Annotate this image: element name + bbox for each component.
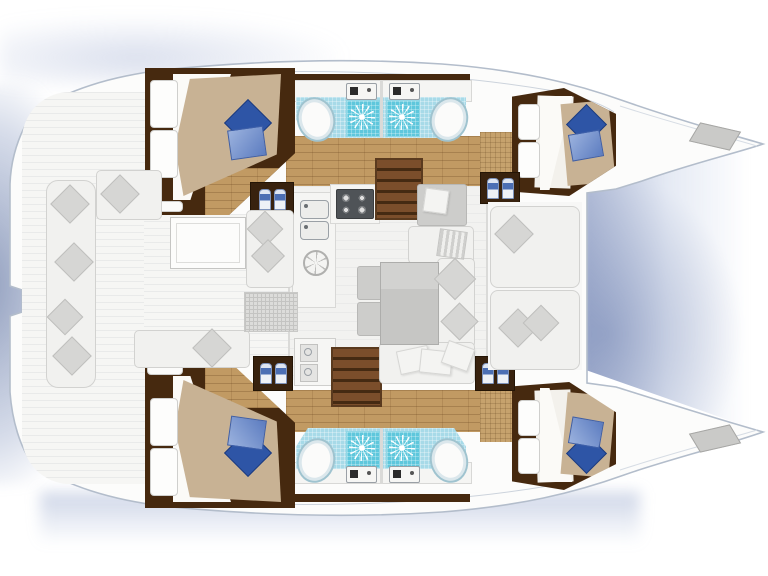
- accent-pillow-light: [568, 416, 604, 448]
- stbd-fwd-cabin-entry-floor: [480, 388, 516, 442]
- port-heads-divider-wall: [380, 80, 383, 138]
- stbd-companionway-stairs: [331, 347, 382, 407]
- stove-cooktop: [336, 189, 374, 219]
- bottle-icon: [487, 178, 499, 199]
- shower-drain-icon: [389, 104, 415, 130]
- port-aft-shower: [346, 100, 380, 137]
- bottle-locker: [253, 356, 293, 391]
- wardrobe-panel: [150, 448, 178, 496]
- bottle-icon: [502, 178, 514, 199]
- accent-pillow-light: [227, 126, 267, 161]
- bottle-locker: [480, 172, 520, 204]
- galley-sink: [300, 200, 329, 219]
- shower-drain-icon: [349, 104, 375, 130]
- cockpit-table: [170, 217, 246, 269]
- stbd-fwd-toilet: [389, 466, 420, 483]
- port-aft-toilet: [346, 83, 377, 100]
- wardrobe-panel: [518, 142, 540, 178]
- fwd-cockpit-bench: [490, 206, 580, 288]
- stbd-aft-shower: [346, 431, 380, 468]
- wardrobe-panel: [150, 80, 178, 128]
- port-fwd-shower: [386, 100, 420, 137]
- cockpit-aft-bench: [134, 330, 250, 368]
- bottle-icon: [259, 189, 271, 210]
- stbd-fwd-shower: [386, 431, 420, 468]
- bottle-icon: [275, 363, 287, 384]
- wardrobe-panel: [150, 398, 178, 446]
- shower-drain-icon: [349, 435, 375, 461]
- catamaran-floor-plan: [0, 0, 768, 576]
- galley-sink: [300, 221, 329, 240]
- stbd-heads-divider-wall: [380, 428, 383, 484]
- sofa-pillow: [436, 228, 468, 260]
- bottle-icon: [274, 189, 286, 210]
- fridge-door: [300, 344, 318, 362]
- stbd-aft-toilet: [346, 466, 377, 483]
- chart-seat-cushion: [422, 187, 449, 214]
- port-companionway-stairs: [375, 158, 423, 220]
- wardrobe-panel: [518, 400, 540, 436]
- stbd-hull-side-cabinet: [294, 494, 470, 502]
- fridge-door: [300, 364, 318, 382]
- dining-table: [380, 262, 439, 345]
- bottle-icon: [260, 363, 272, 384]
- accent-pillow-light: [568, 129, 604, 161]
- accent-pillow-light: [227, 416, 267, 451]
- port-fwd-toilet: [389, 83, 420, 100]
- shower-drain-icon: [389, 435, 415, 461]
- deck-grating: [244, 292, 298, 332]
- wardrobe-panel: [518, 104, 540, 140]
- round-floor-hatch: [303, 250, 329, 276]
- refrigerator: [294, 338, 336, 386]
- wardrobe-panel: [518, 438, 540, 474]
